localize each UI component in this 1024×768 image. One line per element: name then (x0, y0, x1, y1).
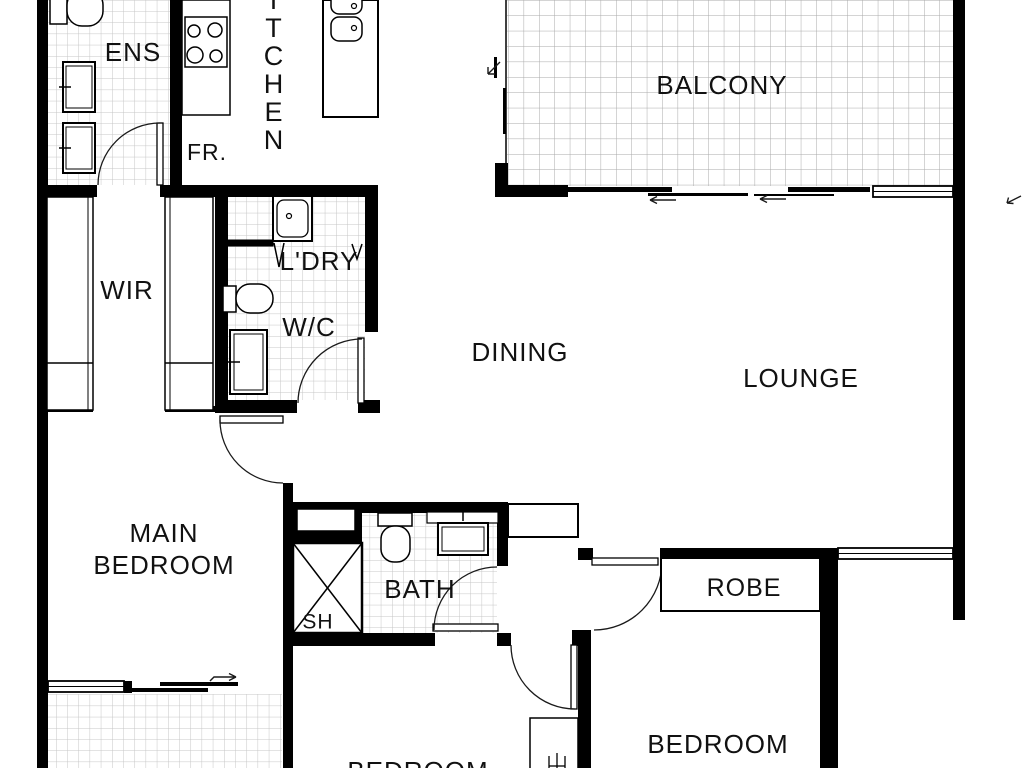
label-main-bedroom: MAIN (130, 518, 199, 548)
linen-cupboard (530, 718, 578, 768)
wc-toilet-icon (223, 284, 273, 313)
svg-text:H: H (264, 69, 285, 99)
bed2-door-arc (511, 645, 575, 709)
ens-door-leaf (157, 123, 163, 185)
wall-kitchen-bottom (160, 185, 378, 197)
wall-wc-right (365, 197, 378, 332)
main-bedroom-window (48, 681, 124, 692)
balcony-window (873, 186, 953, 197)
bath-door-leaf (433, 624, 498, 631)
balcony-slider-panel (567, 187, 672, 192)
label-dining: DINING (472, 337, 569, 367)
svg-text:C: C (264, 41, 285, 71)
corner-arrow-icon (1007, 196, 1021, 204)
island-sink-icon (331, 0, 362, 41)
wall-bath-right (497, 502, 508, 566)
label-fridge: FR. (187, 139, 227, 165)
bed3-door-leaf (592, 558, 658, 565)
label-balcony: BALCONY (656, 70, 787, 100)
svg-text:T: T (265, 13, 283, 43)
label-lounge: LOUNGE (743, 363, 859, 393)
slide-arrow-icon (650, 197, 676, 204)
floor-plan-page: ENS FR. K I T C H E N BALCONY WIR L'DRY … (0, 0, 1024, 768)
label-laundry: L'DRY (280, 246, 359, 276)
bath-vanity-icon (427, 506, 498, 555)
ens-toilet-icon (50, 0, 103, 26)
balcony-slider-panel (788, 187, 870, 192)
laundry-tub-icon (273, 196, 312, 241)
label-main-bedroom: BEDROOM (93, 550, 234, 580)
ens-vanity-icon (59, 62, 95, 112)
label-bath: BATH (384, 574, 455, 604)
bath-toilet-icon (378, 513, 412, 562)
laundry-bench-edge (223, 240, 273, 246)
wall-ens-kitchen (170, 0, 182, 185)
wall-bed3-top-stub (578, 548, 593, 560)
cooktop-icon (185, 17, 227, 67)
wall-bed2-bed3 (578, 630, 591, 768)
label-wc: W/C (282, 312, 336, 342)
svg-text:E: E (264, 97, 283, 127)
label-wir: WIR (100, 275, 154, 305)
shower-niche (297, 509, 355, 531)
wall-balcony-corner-h (495, 185, 568, 197)
hall-cupboard (508, 504, 578, 537)
balcony-slider-panel (648, 193, 748, 196)
wc-door-leaf (358, 338, 364, 403)
lounge-window (838, 548, 953, 559)
label-robe: ROBE (707, 574, 782, 602)
slide-arrow-icon (760, 196, 786, 203)
mainbed-door-arc (220, 420, 283, 483)
wall-bath-bottom (283, 633, 435, 646)
wall-bath-bottom-jamb (497, 633, 511, 646)
mainbed-slider-panel (130, 688, 208, 692)
entry-slider-panel (503, 88, 506, 134)
label-kitchen: K I T C H E N (264, 0, 285, 155)
label-bedroom-right: BEDROOM (647, 729, 788, 759)
label-ens: ENS (105, 37, 161, 67)
label-bedroom-mid: BEDROOM (347, 756, 488, 768)
label-shower: SH (302, 611, 333, 634)
wall-wc-bottom (215, 400, 297, 413)
bed2-door-leaf (571, 645, 577, 709)
wc-vanity-icon (227, 330, 267, 394)
bedroom-balcony-floor (48, 694, 282, 768)
bed3-door-arc (594, 562, 662, 630)
wall-bed3-right (820, 548, 838, 768)
slide-arrow-icon (210, 674, 236, 682)
mainbed-slider-panel (160, 682, 238, 686)
wall-outer-right (953, 0, 965, 620)
wall-ens-bottom (37, 185, 97, 197)
mainbed-door-leaf (220, 416, 283, 423)
ens-vanity-icon (59, 123, 95, 173)
svg-text:N: N (264, 125, 285, 155)
